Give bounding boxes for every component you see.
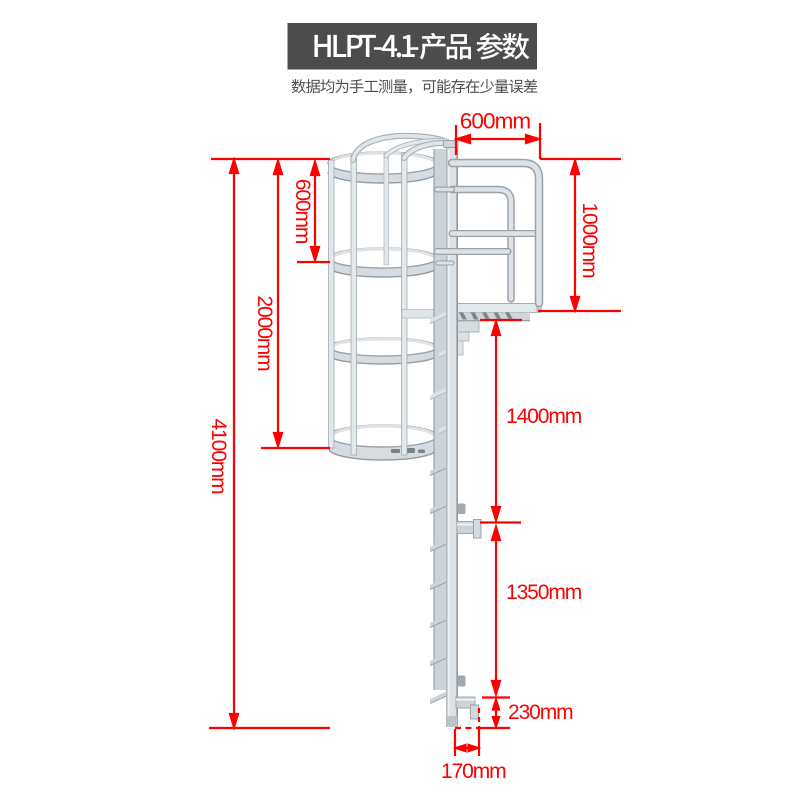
svg-text:170mm: 170mm xyxy=(441,760,506,783)
svg-text:1350mm: 1350mm xyxy=(506,581,582,604)
svg-text:1000mm: 1000mm xyxy=(578,202,601,278)
svg-text:4100mm: 4100mm xyxy=(207,418,230,494)
svg-text:600mm: 600mm xyxy=(460,109,531,134)
svg-text:1400mm: 1400mm xyxy=(506,405,582,428)
svg-text:230mm: 230mm xyxy=(508,701,573,724)
svg-text:2000mm: 2000mm xyxy=(253,295,276,371)
svg-text:600mm: 600mm xyxy=(291,179,314,244)
